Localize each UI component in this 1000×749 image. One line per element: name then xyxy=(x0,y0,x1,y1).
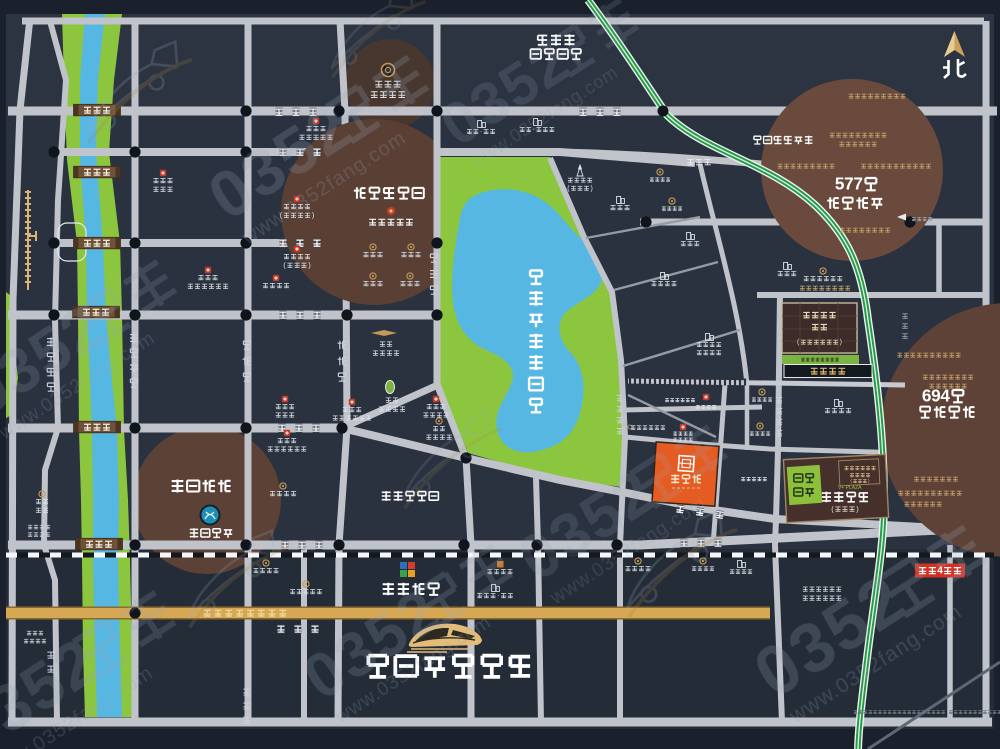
svg-text:): ) xyxy=(868,479,870,485)
svg-text:V+ PLAZA: V+ PLAZA xyxy=(838,485,862,491)
svg-text:7: 7 xyxy=(853,173,863,193)
svg-text:): ) xyxy=(840,339,842,346)
svg-text:7: 7 xyxy=(844,173,854,193)
svg-text:(: ( xyxy=(850,479,852,485)
svg-text:): ) xyxy=(590,185,592,192)
svg-text:·: · xyxy=(497,592,499,600)
